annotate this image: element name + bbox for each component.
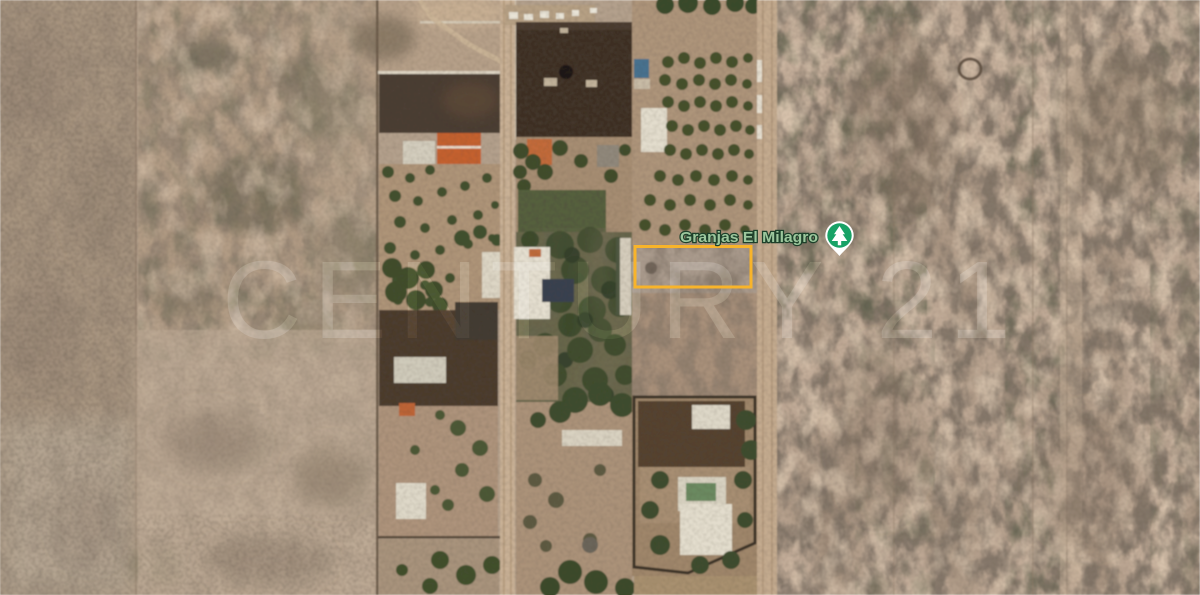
svg-text:CENTURY 21: CENTURY 21 <box>222 239 1023 362</box>
svg-text:Granjas El Milagro: Granjas El Milagro <box>680 229 818 246</box>
